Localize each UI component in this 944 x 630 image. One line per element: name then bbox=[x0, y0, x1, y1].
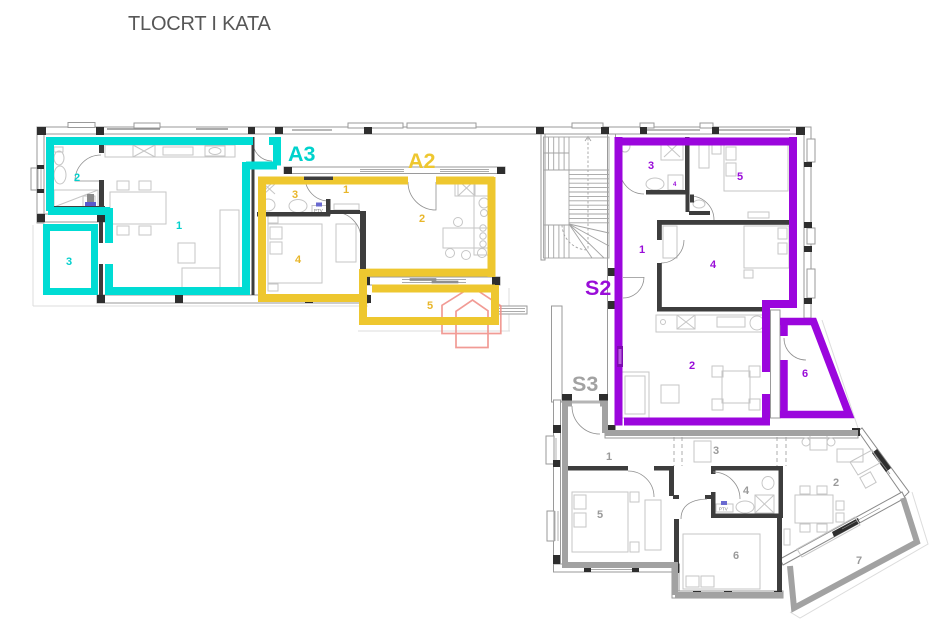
svg-text:4: 4 bbox=[295, 254, 302, 266]
svg-text:S3: S3 bbox=[572, 372, 598, 396]
svg-text:1: 1 bbox=[343, 184, 349, 196]
svg-text:5: 5 bbox=[427, 300, 433, 312]
svg-text:PTV: PTV bbox=[719, 507, 728, 512]
svg-text:7: 7 bbox=[856, 555, 862, 567]
svg-text:2: 2 bbox=[689, 360, 695, 372]
svg-text:4: 4 bbox=[710, 259, 717, 271]
svg-text:3: 3 bbox=[292, 189, 298, 201]
svg-text:6: 6 bbox=[802, 368, 808, 380]
svg-text:3: 3 bbox=[713, 445, 719, 457]
svg-text:5: 5 bbox=[737, 171, 743, 183]
svg-text:3: 3 bbox=[66, 256, 72, 268]
svg-text:S2: S2 bbox=[585, 276, 611, 300]
svg-text:1: 1 bbox=[606, 451, 612, 463]
svg-text:6: 6 bbox=[733, 550, 739, 562]
svg-text:1: 1 bbox=[176, 220, 182, 232]
svg-text:3: 3 bbox=[648, 160, 654, 172]
svg-text:1: 1 bbox=[639, 244, 645, 256]
svg-text:A2: A2 bbox=[408, 149, 436, 173]
svg-text:4: 4 bbox=[743, 485, 750, 497]
svg-text:TLOCRT I KATA: TLOCRT I KATA bbox=[128, 13, 271, 35]
svg-text:2: 2 bbox=[74, 172, 80, 184]
svg-text:4: 4 bbox=[673, 182, 677, 188]
svg-text:2: 2 bbox=[419, 213, 425, 225]
svg-text:A3: A3 bbox=[288, 142, 316, 166]
svg-text:2: 2 bbox=[833, 477, 839, 489]
svg-text:5: 5 bbox=[597, 509, 603, 521]
